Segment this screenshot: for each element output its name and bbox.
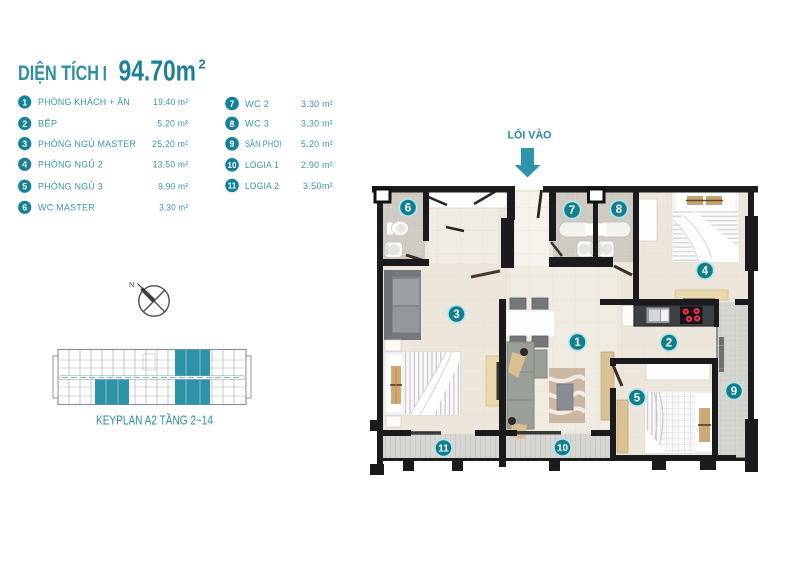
- svg-text:LỐI VÀO: LỐI VÀO: [508, 128, 552, 142]
- svg-text:3: 3: [453, 309, 459, 321]
- svg-text:8: 8: [616, 204, 623, 216]
- svg-text:DIỆN TÍCH: DIỆN TÍCH: [18, 61, 99, 85]
- svg-text:5: 5: [22, 182, 27, 192]
- svg-text:2: 2: [199, 57, 206, 72]
- svg-text:5: 5: [634, 393, 641, 405]
- svg-text:5.20 m²: 5.20 m²: [157, 119, 188, 129]
- svg-text:PHÒNG KHÁCH + ĂN: PHÒNG KHÁCH + ĂN: [38, 97, 130, 107]
- svg-text:5.20 m²: 5.20 m²: [301, 139, 333, 149]
- svg-text:WC MASTER: WC MASTER: [38, 203, 95, 213]
- svg-text:WC 2: WC 2: [245, 99, 269, 109]
- svg-text:PHÒNG NGỦ 2: PHÒNG NGỦ 2: [38, 159, 103, 170]
- svg-text:BẾP: BẾP: [38, 119, 57, 129]
- svg-text:19.40 m²: 19.40 m²: [153, 97, 188, 107]
- svg-text:6: 6: [405, 203, 411, 215]
- svg-text:13.50 m²: 13.50 m²: [153, 160, 189, 170]
- svg-text:25.20 m²: 25.20 m²: [152, 139, 188, 149]
- svg-text:3.50m²: 3.50m²: [303, 181, 333, 191]
- svg-text:3.30 m²: 3.30 m²: [159, 203, 188, 213]
- svg-text:7: 7: [230, 99, 235, 109]
- svg-text:9: 9: [731, 386, 737, 398]
- svg-text:PHÒNG NGỦ MASTER: PHÒNG NGỦ MASTER: [38, 138, 136, 149]
- svg-text:SÂN PHƠI: SÂN PHƠI: [245, 139, 282, 149]
- svg-text:4: 4: [702, 266, 709, 278]
- svg-text:LOGIA 2: LOGIA 2: [245, 181, 279, 191]
- svg-text:LOGIA 1: LOGIA 1: [245, 160, 279, 170]
- svg-text:8: 8: [230, 119, 235, 129]
- svg-text:2: 2: [22, 119, 27, 129]
- svg-text:3.30 m²: 3.30 m²: [301, 119, 333, 129]
- svg-text:9.90 m²: 9.90 m²: [158, 181, 188, 191]
- svg-text:9: 9: [230, 139, 235, 149]
- svg-text:1: 1: [22, 97, 27, 107]
- svg-text:6: 6: [22, 203, 27, 213]
- svg-text:1: 1: [574, 337, 581, 349]
- svg-text:10: 10: [228, 161, 237, 170]
- svg-text:10: 10: [557, 443, 569, 454]
- svg-text:94.70m: 94.70m: [119, 55, 197, 87]
- svg-text:11: 11: [228, 182, 237, 191]
- svg-text:WC 3: WC 3: [245, 119, 269, 129]
- svg-text:4: 4: [22, 160, 27, 170]
- svg-text:7: 7: [569, 205, 575, 217]
- svg-text:11: 11: [438, 444, 449, 455]
- svg-text:KEYPLAN A2 TẦNG 2~14: KEYPLAN A2 TẦNG 2~14: [96, 413, 213, 428]
- svg-text:3: 3: [22, 139, 27, 149]
- svg-text:2: 2: [666, 338, 672, 350]
- svg-text:PHÒNG NGỦ 3: PHÒNG NGỦ 3: [38, 180, 103, 191]
- svg-text:3.30 m²: 3.30 m²: [301, 99, 333, 109]
- svg-text:2.90 m²: 2.90 m²: [301, 160, 333, 170]
- svg-text:N: N: [129, 280, 134, 289]
